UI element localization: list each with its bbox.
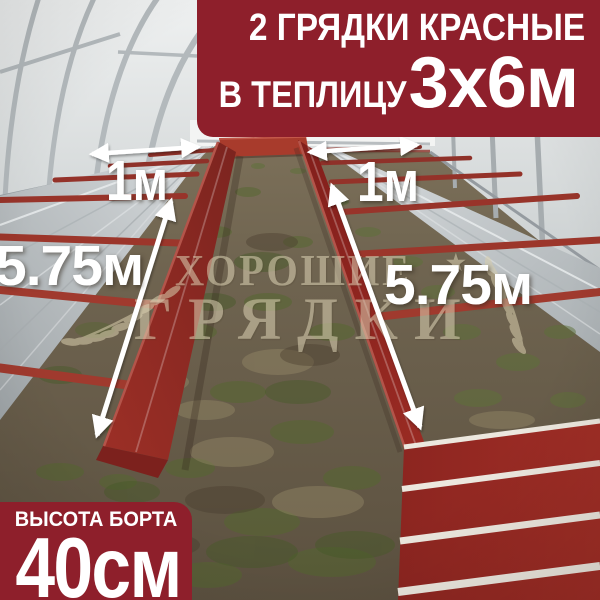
bed-width-label-right: 1м — [357, 154, 419, 211]
bed-length-label-left: 5.75м — [0, 238, 143, 295]
board-height-value: 40см — [15, 519, 176, 600]
greenhouse-size-value: 3х6м — [409, 47, 578, 119]
bed-length-label-right: 5.75м — [384, 257, 532, 314]
board-height-banner: ВЫСОТА БОРТА 40см — [0, 502, 192, 600]
promo-image: ХОРОШИЕ ★ ГРЯДКИ 1м 1м 5.75м 5.75м 2 ГРЯ… — [0, 0, 600, 600]
title-banner: 2 ГРЯДКИ КРАСНЫЕ В ТЕПЛИЦУ 3х6м — [197, 0, 600, 137]
title-line1: 2 ГРЯДКИ КРАСНЫЕ — [249, 9, 585, 47]
title-line2-label: В ТЕПЛИЦУ — [218, 76, 406, 113]
bed-width-label-left: 1м — [106, 153, 168, 210]
